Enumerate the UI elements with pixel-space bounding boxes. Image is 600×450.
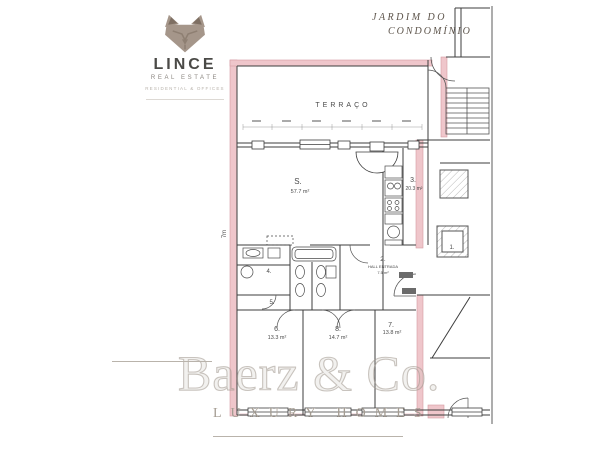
bed8-area: 14.7 m²	[329, 335, 348, 341]
staircase	[428, 57, 489, 134]
room3-area: 20.3 m²	[406, 186, 423, 192]
living-label: S.	[294, 177, 302, 186]
hall-cabinets	[399, 272, 416, 294]
plan-walls	[237, 8, 490, 415]
elevator-shafts	[437, 170, 468, 257]
bed8-label: 8.	[335, 326, 341, 333]
bed6-area: 13.3 m²	[268, 335, 287, 341]
left-dimension-label: 7m	[222, 230, 228, 238]
hall-name: HALL ENTRADA	[368, 264, 398, 269]
wc5-label: 5.	[269, 300, 274, 306]
elevator-label: 1.	[449, 245, 454, 251]
floor-plan: TERRAÇO S. 57.7 m² 3. 20.3 m² 2. HALL EN…	[0, 0, 600, 450]
door-swings	[262, 245, 468, 418]
room3-label: 3.	[410, 177, 416, 184]
wc4-label: 4.	[266, 269, 271, 275]
bed7-area: 13.8 m²	[383, 330, 402, 336]
dimension-marks	[243, 120, 422, 130]
watermark-line-bottom	[213, 436, 403, 437]
bed6-label: 6.	[274, 326, 280, 333]
hall-label: 2.	[380, 256, 386, 263]
bed7-label: 7.	[388, 322, 394, 329]
highlighted-walls	[230, 57, 447, 418]
watermark-line-left	[112, 361, 212, 362]
terrace-label: TERRAÇO	[315, 102, 370, 109]
living-area: 57.7 m²	[291, 189, 310, 195]
kitchen-units	[385, 166, 402, 245]
scanned-floorplan-page: LINCE REAL ESTATE RESIDENTIAL & OFFICES …	[0, 0, 600, 450]
hall-area: 7.5 m²	[377, 270, 389, 275]
